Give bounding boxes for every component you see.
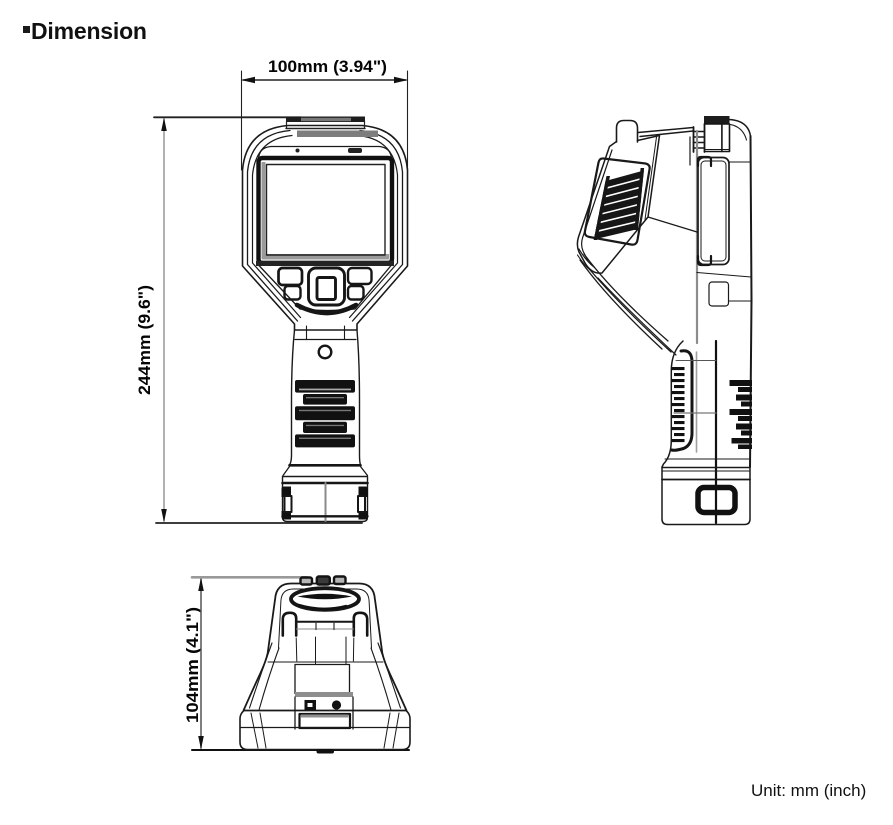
svg-text:100mm (3.94"): 100mm (3.94")	[268, 57, 387, 76]
svg-text:244mm (9.6"): 244mm (9.6")	[135, 285, 154, 395]
svg-text:104mm (4.1"): 104mm (4.1")	[183, 607, 202, 723]
